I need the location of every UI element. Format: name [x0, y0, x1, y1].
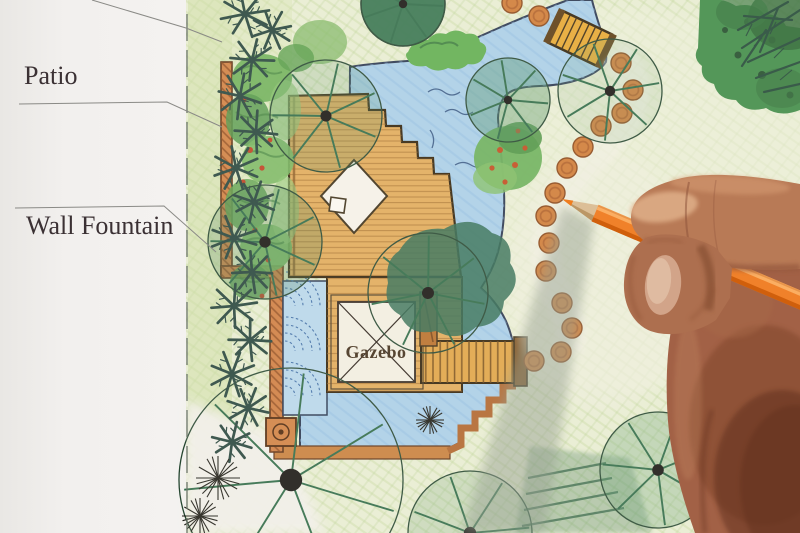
- svg-text:Patio: Patio: [24, 61, 77, 90]
- svg-text:Wall Fountain: Wall Fountain: [26, 211, 173, 240]
